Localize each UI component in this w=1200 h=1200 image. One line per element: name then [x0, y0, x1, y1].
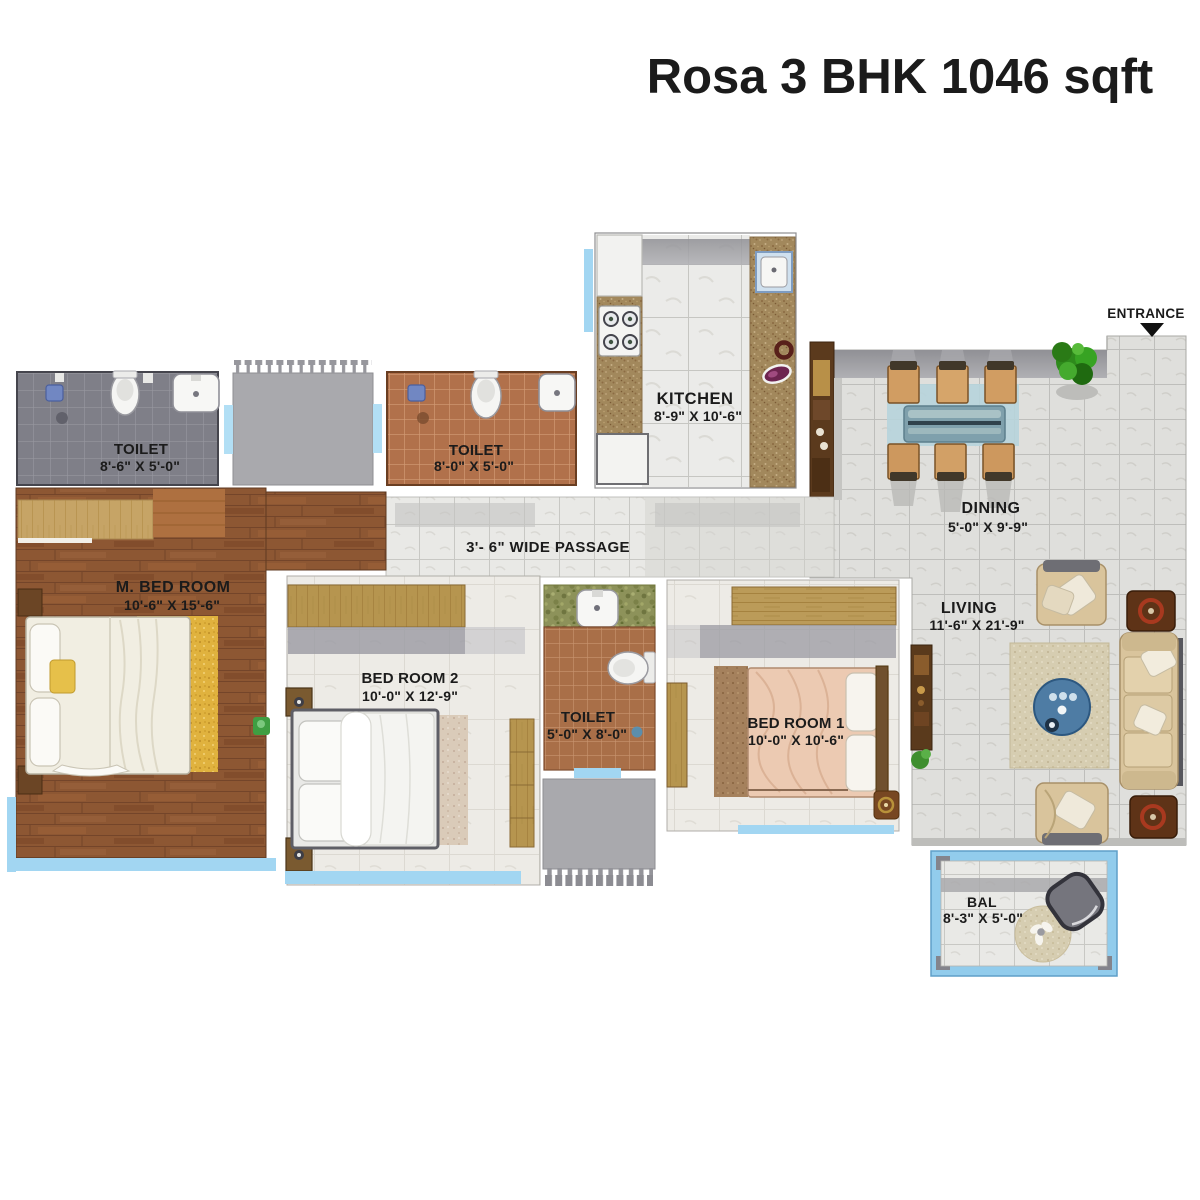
svg-text:KITCHEN: KITCHEN [657, 390, 734, 408]
svg-text:BED ROOM 2: BED ROOM 2 [361, 670, 458, 687]
svg-text:Rosa 3 BHK 1046 sqft: Rosa 3 BHK 1046 sqft [647, 50, 1154, 104]
svg-text:TOILET: TOILET [561, 709, 615, 726]
svg-text:8'-0" X 5'-0": 8'-0" X 5'-0" [434, 458, 514, 474]
svg-text:LIVING: LIVING [941, 600, 997, 617]
svg-text:8'-9" X 10'-6": 8'-9" X 10'-6" [654, 408, 742, 424]
svg-text:8'-3" X 5'-0": 8'-3" X 5'-0" [943, 910, 1023, 926]
svg-text:3'- 6" WIDE PASSAGE: 3'- 6" WIDE PASSAGE [466, 539, 630, 556]
svg-text:DINING: DINING [962, 500, 1021, 517]
svg-text:TOILET: TOILET [114, 441, 168, 458]
svg-text:5'-0" X 8'-0": 5'-0" X 8'-0" [547, 726, 627, 742]
svg-text:5'-0" X 9'-9": 5'-0" X 9'-9" [948, 519, 1028, 535]
svg-text:10'-6" X 15'-6": 10'-6" X 15'-6" [124, 597, 220, 613]
svg-text:BED ROOM 1: BED ROOM 1 [747, 715, 844, 732]
svg-text:10'-0" X 12'-9": 10'-0" X 12'-9" [362, 688, 458, 704]
svg-text:11'-6" X 21'-9": 11'-6" X 21'-9" [929, 617, 1024, 633]
svg-text:BAL: BAL [967, 894, 997, 910]
svg-text:8'-6" X 5'-0": 8'-6" X 5'-0" [100, 458, 180, 474]
svg-text:TOILET: TOILET [449, 442, 503, 459]
svg-text:M. BED ROOM: M. BED ROOM [116, 579, 231, 596]
svg-text:ENTRANCE: ENTRANCE [1107, 306, 1184, 321]
svg-text:10'-0" X 10'-6": 10'-0" X 10'-6" [748, 732, 844, 748]
